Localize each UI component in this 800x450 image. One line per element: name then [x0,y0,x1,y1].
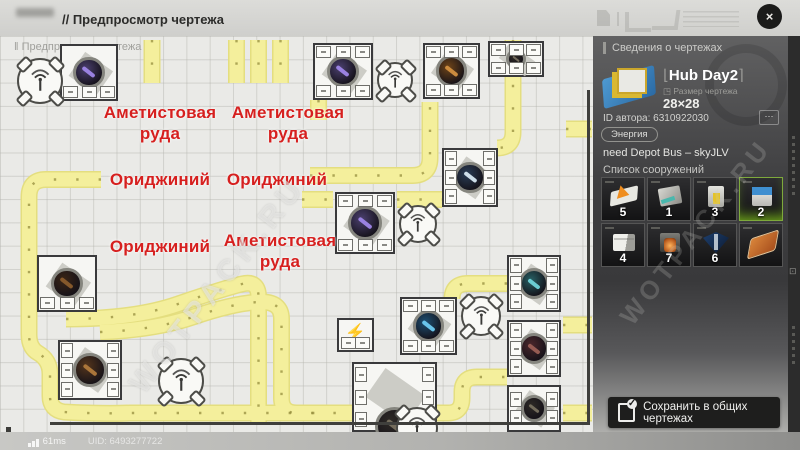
io-port [358,195,373,207]
structure-count: 6 [694,251,736,265]
structure-count: 3 [694,205,736,219]
core-highlight [60,277,74,290]
io-port [358,239,373,251]
drill-core [519,333,549,363]
io-port [426,84,441,96]
core-highlight [82,363,97,376]
core-highlight [336,65,350,78]
ore-label: Ориджиний [110,236,210,257]
io-port [510,392,522,407]
ore-label-line: Аметистовая [224,230,337,251]
power-tower [461,296,501,336]
mining-drill [423,43,480,99]
io-port [336,46,351,58]
drill-core [413,310,445,342]
io-port [546,392,558,407]
size-icon: ◳ [663,86,671,96]
mining-drill [400,297,457,355]
io-port [61,363,73,378]
io-port [60,297,75,309]
io-port [510,276,522,291]
io-port [526,62,541,74]
drill-core [73,353,107,387]
io-port [40,297,55,309]
author-id: ID автора: 6310922030 [603,113,709,124]
redacted-text [16,8,54,17]
io-port [341,337,356,349]
io-port [445,189,457,204]
drill-core [348,206,382,240]
io-port [483,189,495,204]
io-port [439,300,454,312]
io-port [316,85,331,97]
power-tower [377,62,413,98]
io-port [61,382,73,397]
logo-fine-print [683,11,739,27]
io-port [79,297,94,309]
structure-tile-depot[interactable]: 4 [601,223,645,267]
io-port [421,300,436,312]
structure-tile-powerplant[interactable]: 3 [693,177,737,221]
io-port [546,341,558,356]
io-port [462,84,477,96]
structure-count: 2 [740,205,782,219]
io-port [82,86,97,98]
ore-label-line: Аметистовая [232,102,345,123]
structure-count: 5 [602,205,644,219]
ore-label: Ориджиний [227,169,327,190]
mining-drill [60,44,118,101]
mining-drill [313,43,373,100]
core-highlight [527,278,540,290]
core-highlight [357,216,372,229]
ore-label-line: Ориджиний [110,169,210,190]
power-tower [399,205,437,243]
ore-label-line: Ориджиний [110,236,210,257]
map-corner-marker [6,427,11,432]
power-node: ⚡ [337,318,374,352]
io-port [546,258,558,273]
logo-glyph [652,10,681,30]
structure-tile-hub[interactable]: 2 [739,177,783,221]
io-port [355,367,367,382]
logo-glyph [625,12,651,32]
structure-tile-furnace[interactable]: 7 [647,223,691,267]
io-port [422,367,434,382]
save-to-public-blueprints-button[interactable]: Сохранить в общих чертежах [608,397,780,428]
blueprint-map-viewport[interactable]: ‖ Предпросмотр чертежа ⚡ [0,36,593,432]
energy-tag: Энергия [601,127,658,142]
core-highlight [527,343,540,355]
ore-label: Аметистоваяруда [104,102,217,144]
foundation-icon [747,230,777,256]
structure-tile-pylon[interactable]: 6 [693,223,737,267]
io-port [100,86,115,98]
core-highlight [82,66,96,79]
mining-drill [507,255,561,312]
core-highlight [463,171,477,183]
io-port [107,382,119,397]
antenna-icon [469,304,494,329]
mining-drill [58,340,122,400]
io-port [444,84,459,96]
io-port [107,363,119,378]
ore-label-line: руда [104,123,217,144]
io-port [336,85,351,97]
io-port [107,343,119,358]
io-port [444,46,459,58]
ore-label-line: Аметистовая [104,102,217,123]
blueprint-info-panel: Сведения о чертежах ⌊Hub Day2⌉ ◳ Размер … [593,36,788,432]
io-port [422,390,434,405]
structure-count: 7 [648,251,690,265]
io-port [439,340,454,352]
close-icon: × [766,9,774,24]
blueprint-thumbnail [601,62,659,108]
side-rail: ⊡ [788,36,800,432]
io-port [510,294,522,309]
drill-core [51,268,83,300]
io-port [355,337,370,349]
structure-tile-foundation[interactable] [739,223,783,267]
ore-label-line: Ориджиний [227,169,327,190]
power-tower [396,407,438,432]
io-port [355,46,370,58]
drill-core [73,57,105,89]
io-port [61,343,73,358]
io-port [491,44,506,56]
drill-core [436,55,467,86]
drill-core [454,162,485,193]
structure-count: 4 [602,251,644,265]
io-port [491,62,506,74]
mining-drill [335,192,395,254]
io-port [338,239,353,251]
io-port [510,359,522,374]
blueprint-note: need Depot Bus – skyJLV [603,147,729,159]
io-port [63,86,78,98]
structure-tile-crusher[interactable]: 1 [647,177,691,221]
uid-value: UID: 6493277722 [88,436,162,447]
ore-label: Аметистоваяруда [224,230,337,272]
io-port [483,151,495,166]
mining-drill [442,148,498,207]
document-icon [597,10,610,26]
ping-value: 61ms [43,436,66,447]
io-port [377,239,392,251]
rail-marker-icon: ⊡ [789,266,797,277]
page-title: // Предпросмотр чертежа [62,12,224,27]
io-port [483,170,495,185]
io-port [316,46,331,58]
ore-label: Ориджиний [110,169,210,190]
status-bar: 61msUID: 6493277722 [0,432,800,450]
antenna-icon [167,367,196,396]
power-tower [17,58,63,104]
io-port [509,62,524,74]
blueprint-name: ⌊Hub Day2⌉ [663,66,744,84]
io-port [546,294,558,309]
signal-icon [28,436,40,447]
mining-drill [488,41,544,77]
core-highlight [528,404,539,414]
io-port [403,340,418,352]
io-port [403,300,418,312]
antenna-icon [26,67,55,96]
drill-core [521,395,547,421]
io-port [510,341,522,356]
io-port [377,195,392,207]
io-port [338,195,353,207]
io-port [426,46,441,58]
close-button[interactable]: × [757,4,782,29]
conveyor-belt-segment [437,377,507,413]
io-port [510,258,522,273]
drill-core [327,56,359,88]
io-port [445,170,457,185]
structure-list-title: Список сооружений [603,164,704,176]
structure-tile-conveyor[interactable]: 5 [601,177,645,221]
structure-list: 5132476 [601,177,785,267]
mining-drill [507,320,561,377]
ore-label: Аметистоваяруда [232,102,345,144]
power-tower [158,358,204,404]
io-port [355,390,367,405]
io-port [526,44,541,56]
core-highlight [444,65,458,77]
top-bar: // Предпросмотр чертежа × [0,0,800,36]
io-port [546,359,558,374]
blueprint-boundary-right [587,90,590,425]
blueprint-boundary-bottom [50,422,589,425]
more-options-button[interactable]: ⋯ [759,110,779,125]
structure-count: 1 [648,205,690,219]
io-port [509,44,524,56]
save-check-icon [618,403,635,422]
io-port [421,340,436,352]
core-highlight [421,320,435,333]
blueprint-preview-screen: // Предпросмотр чертежа × ‖ Предпросмотр… [0,0,800,450]
io-port [355,85,370,97]
panel-header: Сведения о чертежах [603,42,722,54]
ore-label-line: руда [232,123,345,144]
io-port [546,323,558,338]
io-port [510,323,522,338]
blueprint-size-value: 28×28 [663,96,700,111]
io-port [462,46,477,58]
drill-core [519,268,549,298]
ore-label-line: руда [224,251,337,272]
io-port [445,151,457,166]
mining-drill [37,255,97,312]
io-port [546,276,558,291]
